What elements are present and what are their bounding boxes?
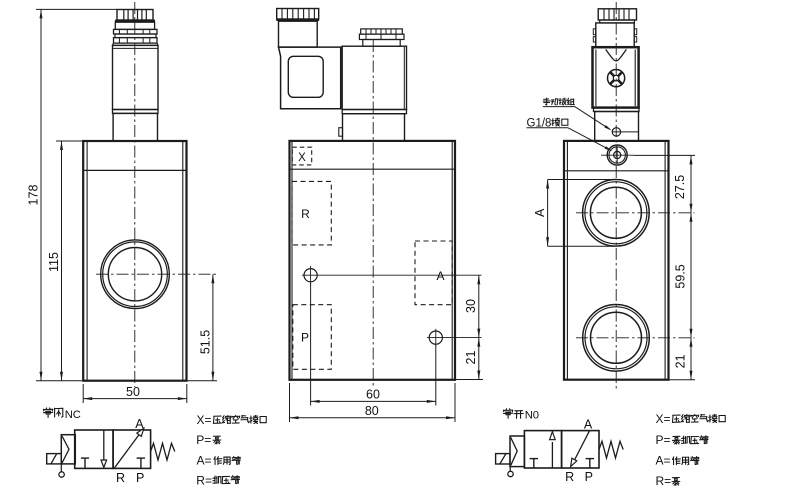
svg-text:A: A <box>135 417 144 431</box>
svg-text:R=: R= <box>656 474 672 488</box>
svg-text:27.5: 27.5 <box>673 175 687 199</box>
svg-text:A=: A= <box>656 454 671 468</box>
svg-text:115: 115 <box>47 252 61 272</box>
svg-text:51.5: 51.5 <box>199 330 213 354</box>
svg-text:P=: P= <box>196 433 211 447</box>
svg-text:80: 80 <box>365 404 379 418</box>
svg-text:30: 30 <box>464 299 478 313</box>
svg-text:178: 178 <box>27 185 41 206</box>
svg-text:A: A <box>533 208 547 217</box>
svg-text:A=: A= <box>197 454 212 468</box>
svg-text:21: 21 <box>674 354 688 368</box>
svg-text:50: 50 <box>126 385 140 399</box>
svg-text:21: 21 <box>464 351 478 365</box>
svg-text:R: R <box>565 470 574 484</box>
svg-text:R=: R= <box>196 473 212 487</box>
svg-text:59.5: 59.5 <box>674 264 688 288</box>
svg-text:NC: NC <box>65 409 81 421</box>
svg-text:60: 60 <box>366 388 380 402</box>
svg-text:X=: X= <box>197 413 212 427</box>
svg-text:R: R <box>301 207 310 221</box>
svg-text:P: P <box>585 470 593 484</box>
svg-text:N0: N0 <box>525 409 539 421</box>
svg-text:A: A <box>436 269 444 283</box>
svg-text:A: A <box>584 418 593 432</box>
svg-text:R: R <box>116 471 125 485</box>
svg-text:P: P <box>136 471 144 485</box>
svg-text:X=: X= <box>656 412 671 426</box>
svg-text:P=: P= <box>656 433 671 447</box>
svg-text:X: X <box>298 152 306 164</box>
svg-text:P: P <box>301 331 309 345</box>
